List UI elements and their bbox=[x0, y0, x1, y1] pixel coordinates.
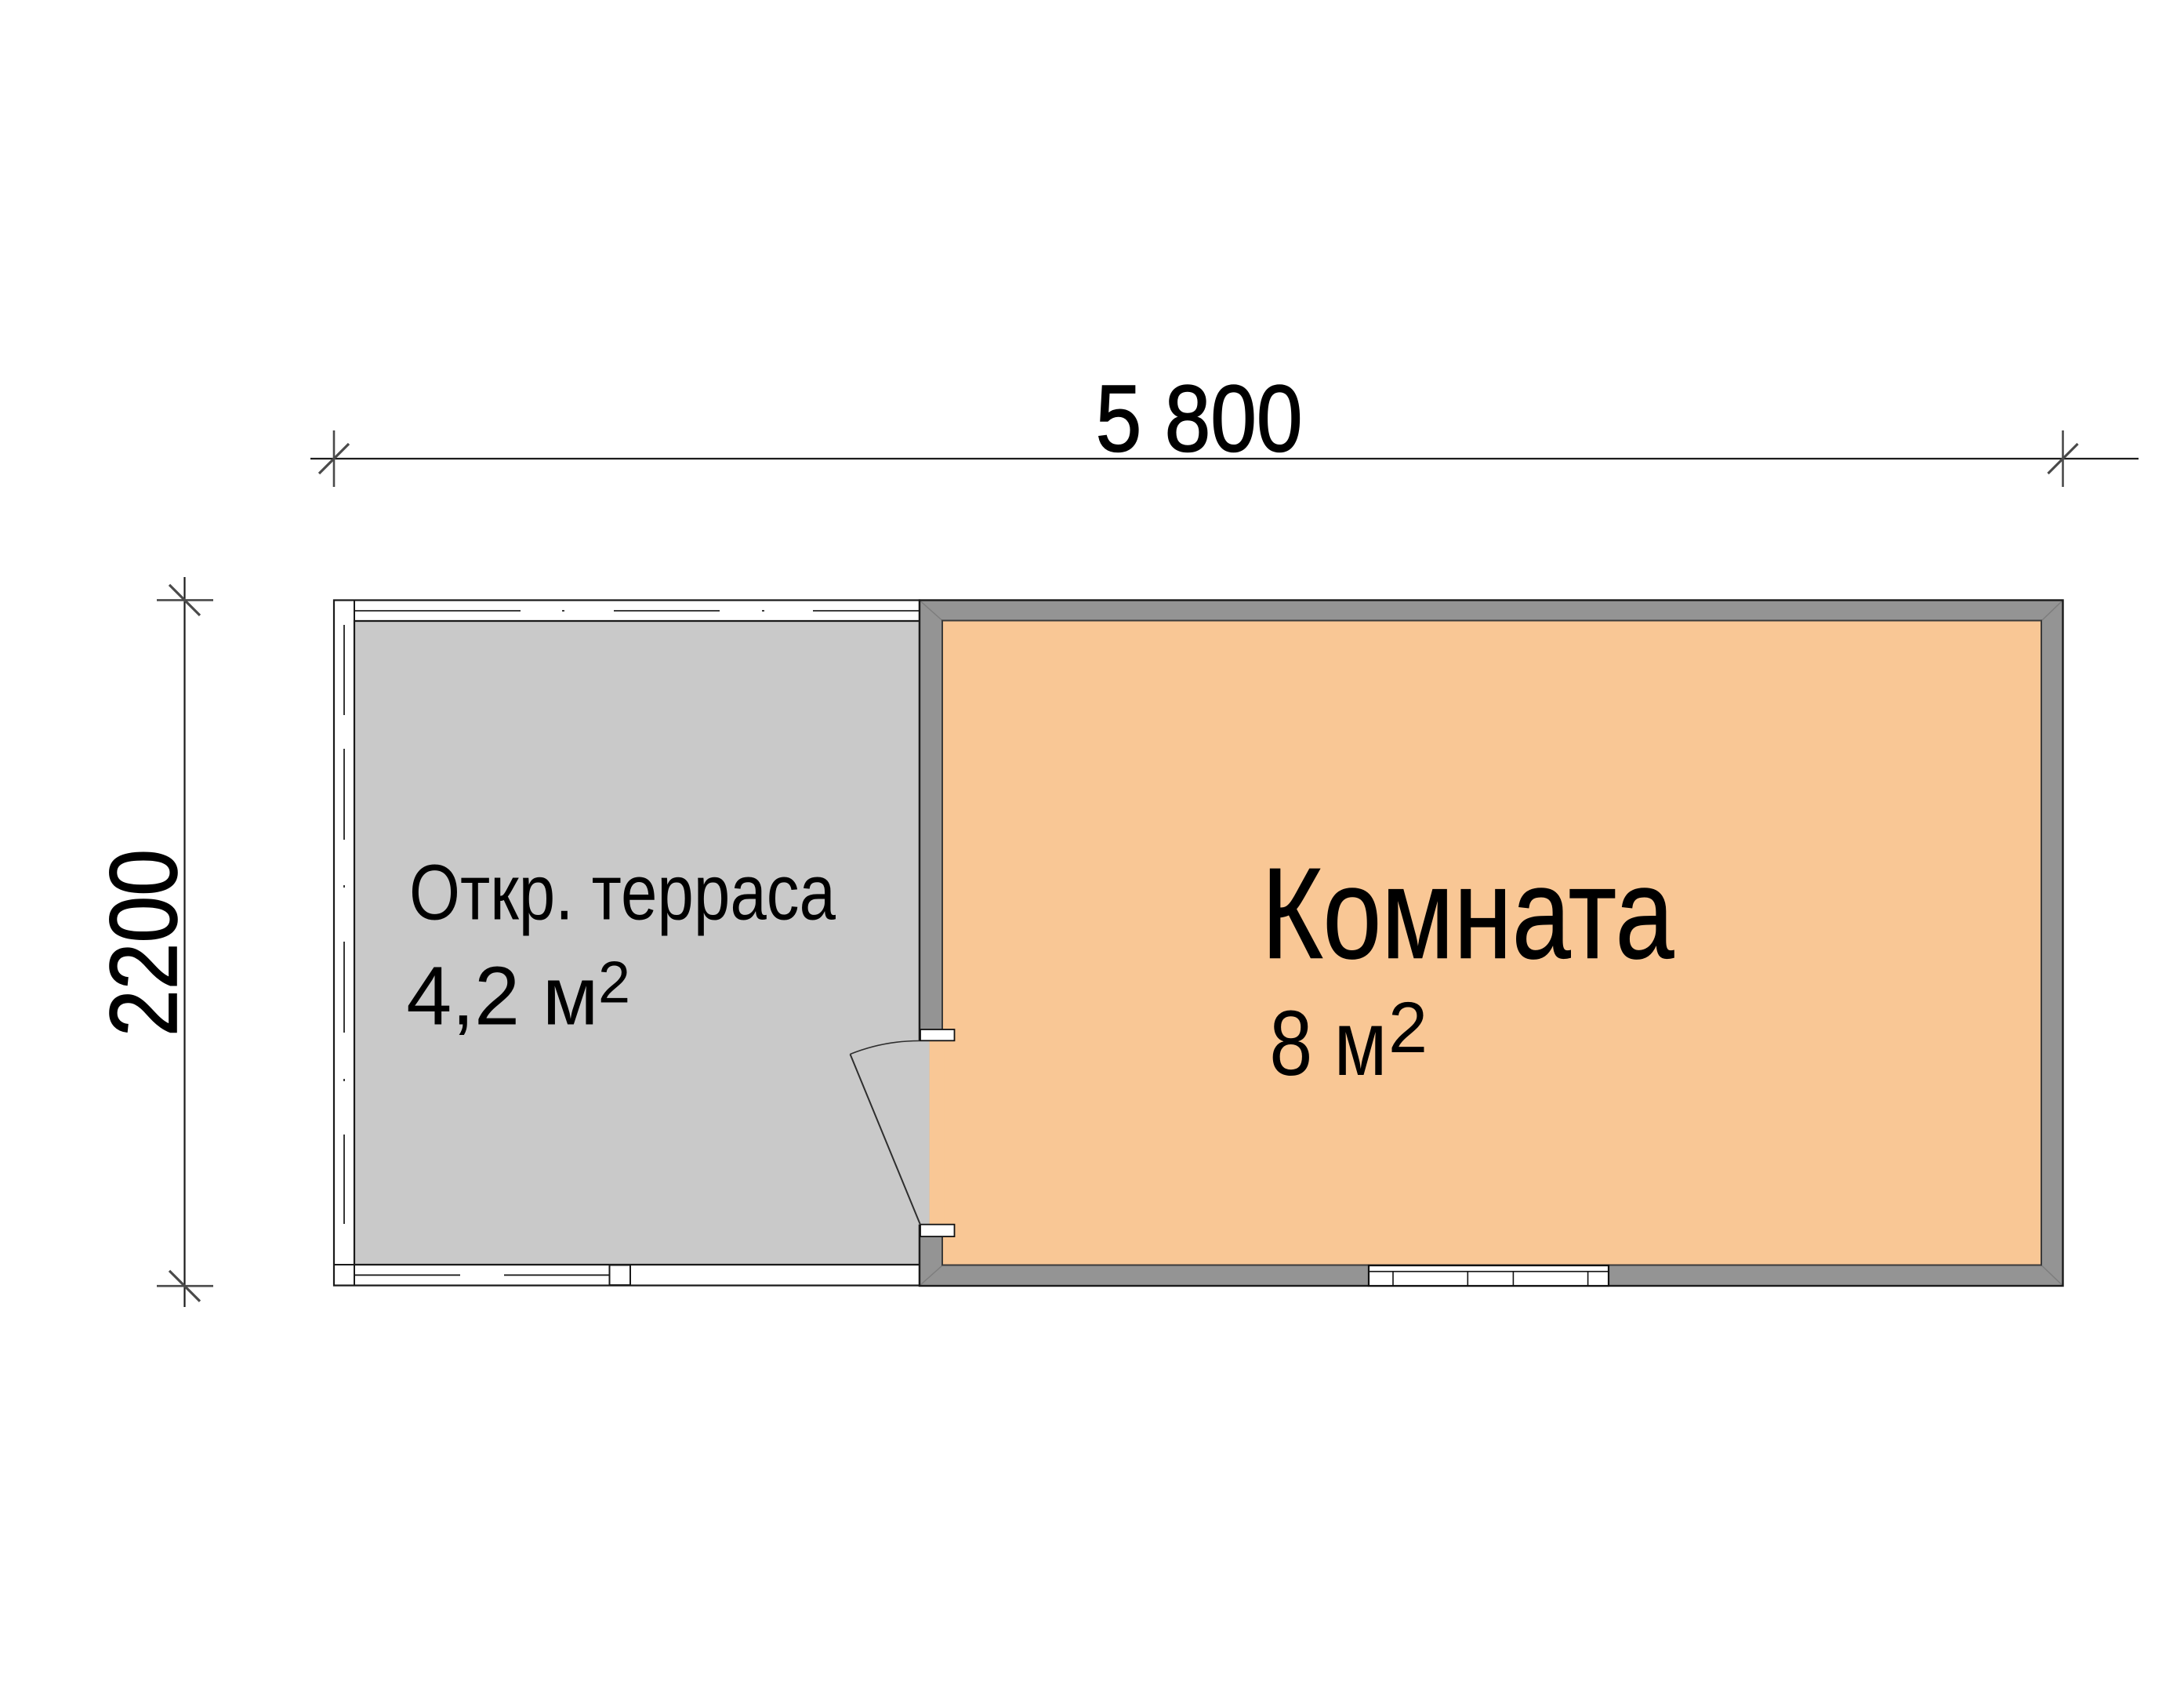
svg-text:2200: 2200 bbox=[90, 849, 197, 1037]
svg-text:2: 2 bbox=[1388, 988, 1428, 1068]
svg-text:Откр. терраса: Откр. терраса bbox=[409, 848, 836, 936]
svg-text:5 800: 5 800 bbox=[1096, 365, 1303, 472]
svg-text:4,2 м: 4,2 м bbox=[406, 949, 598, 1042]
svg-text:8 м: 8 м bbox=[1269, 992, 1387, 1095]
svg-text:2: 2 bbox=[598, 949, 630, 1015]
svg-text:Комната: Комната bbox=[1261, 841, 1674, 986]
